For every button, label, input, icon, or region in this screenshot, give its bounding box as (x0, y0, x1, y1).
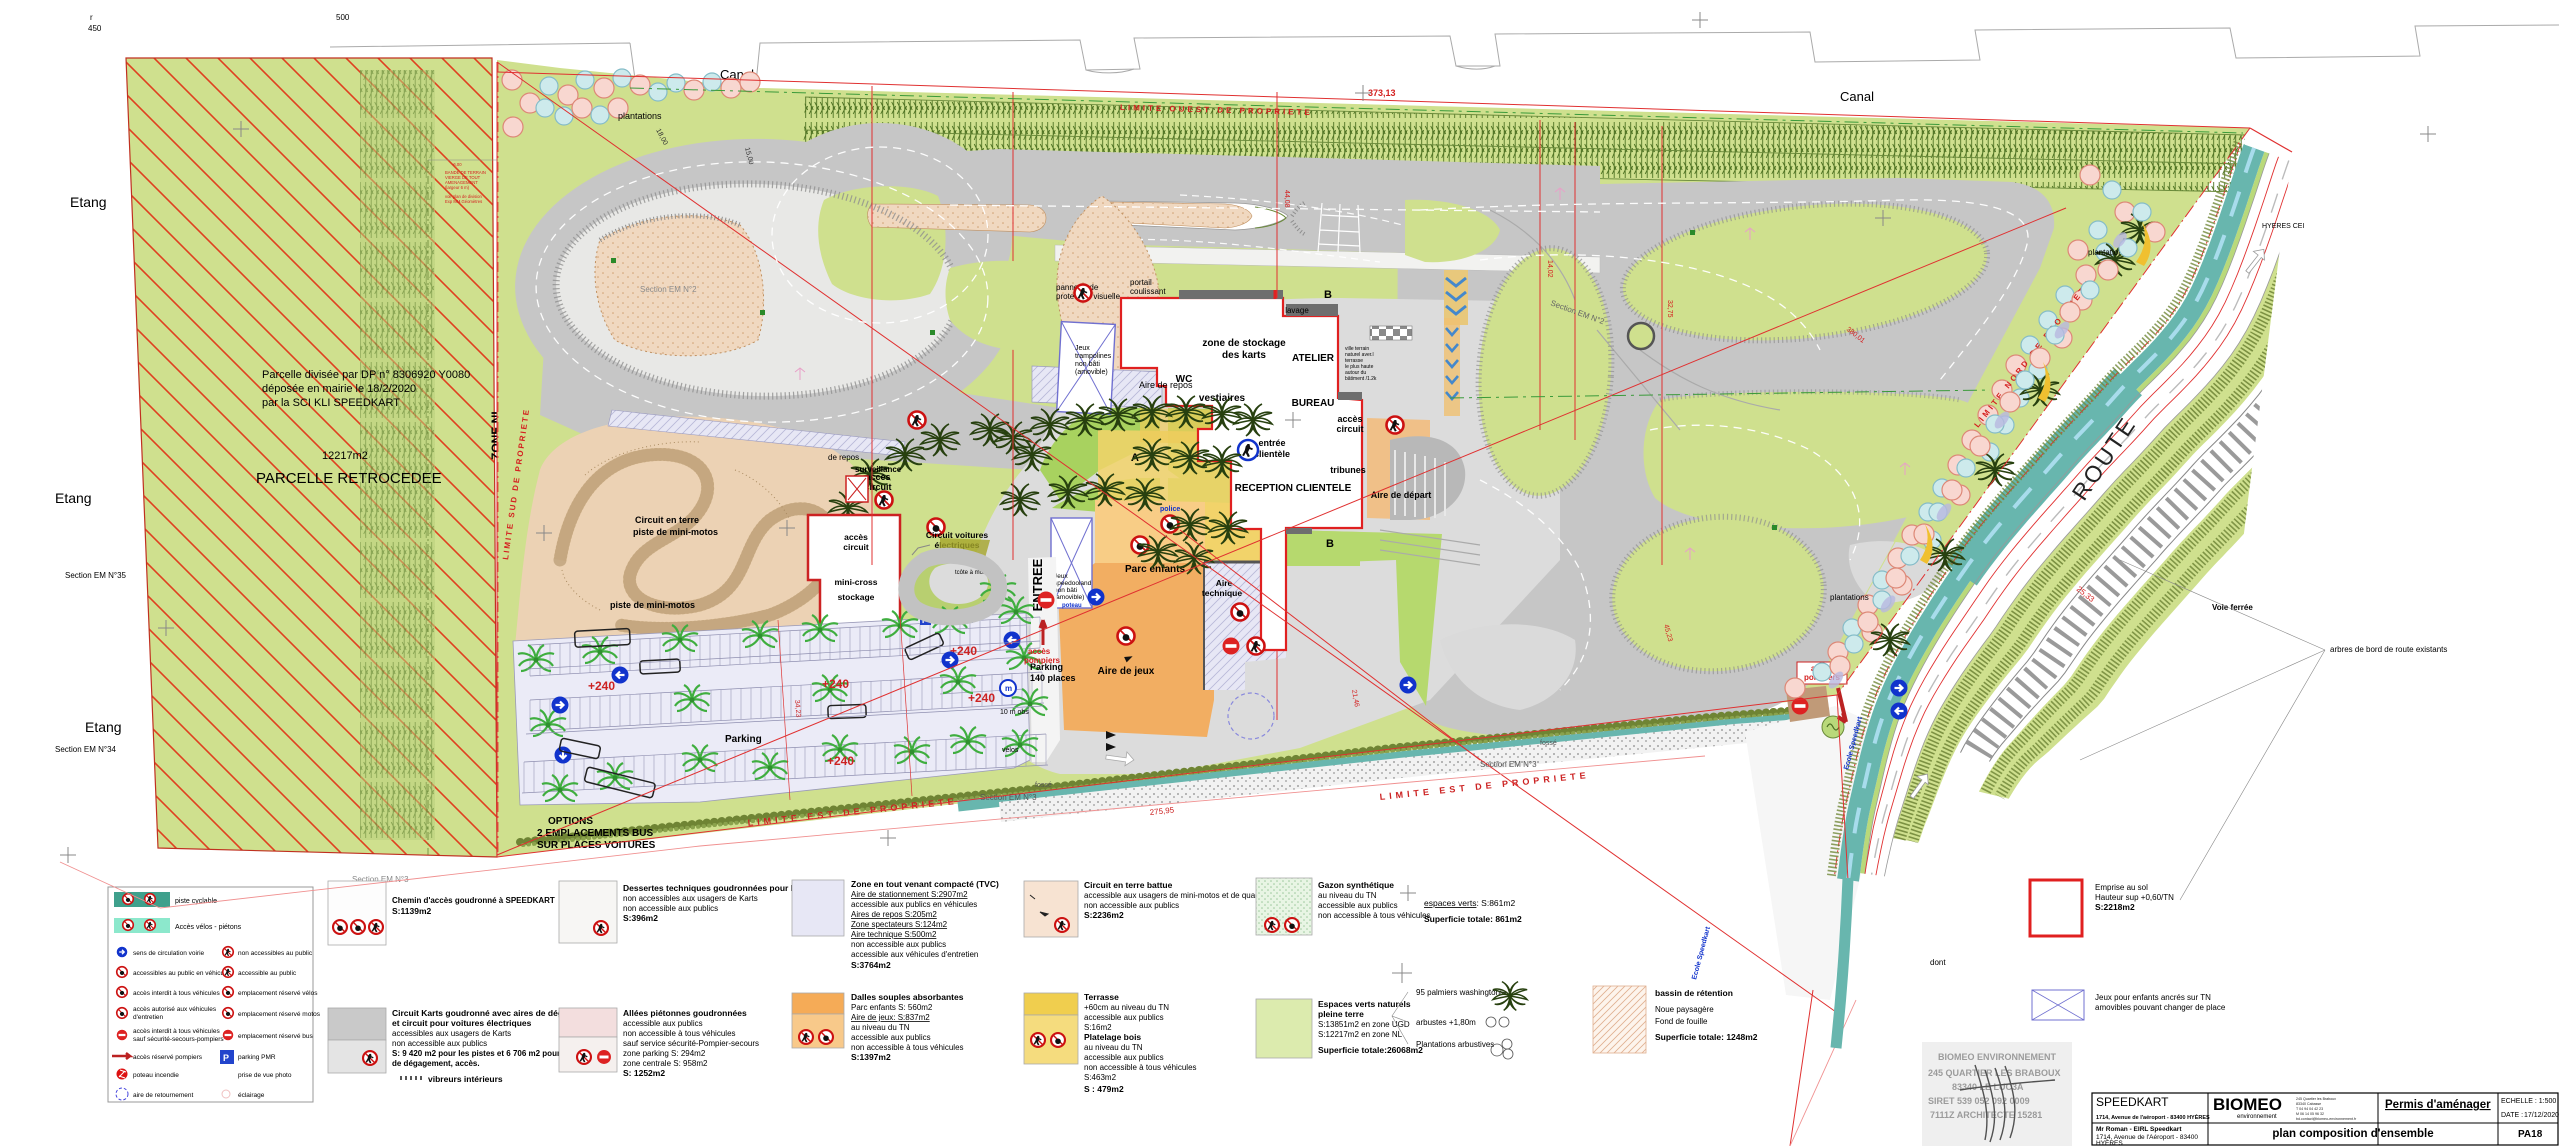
svg-text:12217m2: 12217m2 (322, 450, 368, 462)
svg-text:+240: +240 (588, 679, 615, 693)
svg-text:accessible aux publics: accessible aux publics (623, 1019, 703, 1028)
svg-text:fossé: fossé (1035, 782, 1052, 789)
svg-text:Zone en tout venant compacté (: Zone en tout venant compacté (TVC) (851, 879, 999, 889)
svg-text:aire de retournement: aire de retournement (133, 1092, 194, 1099)
svg-text:Parc enfants: Parc enfants (1125, 564, 1185, 575)
svg-text:technique: technique (1202, 588, 1242, 598)
svg-text:Jeux: Jeux (1075, 345, 1090, 352)
svg-text:zone parking S: 294m2: zone parking S: 294m2 (623, 1049, 706, 1058)
svg-text:non accessible à tous véhicule: non accessible à tous véhicules (1318, 911, 1431, 920)
svg-text:B: B (1326, 538, 1334, 550)
svg-text:non accessible aux publics: non accessible aux publics (623, 904, 718, 913)
svg-text:non bâti: non bâti (1075, 361, 1100, 368)
svg-text:m: m (1005, 684, 1012, 693)
svg-text:Aire de départ: Aire de départ (1371, 490, 1432, 500)
svg-text:S : 479m2: S : 479m2 (1084, 1084, 1124, 1094)
svg-text:surveillance: surveillance (855, 465, 902, 474)
svg-text:clientèle: clientèle (1254, 449, 1290, 459)
svg-text:(amovible): (amovible) (1054, 594, 1084, 601)
svg-text:Circuit en terre battue: Circuit en terre battue (1084, 880, 1173, 890)
svg-text:r: r (90, 13, 93, 22)
svg-text:et circuit pour voitures élect: et circuit pour voitures électriques (392, 1018, 532, 1028)
svg-text:accessible aux véhicules d'ent: accessible aux véhicules d'entretien (851, 950, 978, 959)
svg-text:non accessible aux publics: non accessible aux publics (392, 1039, 487, 1048)
svg-text:Superficie totale:26068m2: Superficie totale:26068m2 (1318, 1045, 1423, 1055)
svg-text:ATELIER: ATELIER (1292, 353, 1335, 364)
svg-text:Section EM N°2: Section EM N°2 (640, 285, 697, 294)
svg-text:Plantations arbustives: Plantations arbustives (1416, 1040, 1494, 1049)
svg-text:tribunes: tribunes (1330, 465, 1366, 475)
svg-text:Emprise au sol: Emprise au sol (2095, 883, 2148, 892)
svg-text:police: police (1160, 506, 1180, 513)
svg-text:Jeux pour enfants ancrés sur T: Jeux pour enfants ancrés sur TN (2095, 993, 2211, 1002)
svg-text:S:13851m2 en zone UGD: S:13851m2 en zone UGD (1318, 1020, 1410, 1029)
svg-text:Aire technique S:500m2: Aire technique S:500m2 (851, 930, 937, 939)
svg-text:piste de mini-motos: piste de mini-motos (610, 600, 695, 610)
svg-text:sauf sécurité-secours-pompiers: sauf sécurité-secours-pompiers (133, 1036, 224, 1043)
svg-text:fossé: fossé (1540, 740, 1557, 747)
svg-text:-6,00: -6,00 (452, 162, 462, 167)
svg-text:+240: +240 (968, 691, 995, 705)
svg-text:speedooland: speedooland (1054, 580, 1092, 587)
svg-text:bd.contact@biomeo-environnemen: bd.contact@biomeo-environnement.fr (2296, 1117, 2357, 1121)
svg-text:accessible aux publics: accessible aux publics (1084, 1053, 1164, 1062)
svg-text:Espaces verts naturels: Espaces verts naturels (1318, 999, 1411, 1009)
svg-text:Etang: Etang (85, 719, 122, 735)
svg-text:BIOMEO: BIOMEO (2213, 1095, 2282, 1114)
svg-text:espaces verts: S:861m2: espaces verts: S:861m2 (1424, 898, 1515, 908)
svg-text:DATE :: DATE : (2501, 1112, 2523, 1119)
svg-text:Fond de fouille: Fond de fouille (1655, 1017, 1708, 1026)
svg-text:éclairage: éclairage (238, 1092, 265, 1099)
svg-text:accessibles aux usagers de Kar: accessibles aux usagers de Karts (392, 1029, 511, 1038)
svg-text:P: P (223, 1053, 229, 1063)
svg-text:plan composition d'ensemble: plan composition d'ensemble (2272, 1128, 2433, 1140)
svg-text:17/12/2020: 17/12/2020 (2524, 1112, 2559, 1119)
svg-text:Parking: Parking (725, 734, 762, 745)
svg-text:bassin de rétention: bassin de rétention (1655, 988, 1733, 998)
svg-text:10 m obs: 10 m obs (1000, 709, 1029, 716)
svg-text:PA18: PA18 (2518, 1129, 2543, 1140)
svg-text:déposée en mairie le 18/2/2020: déposée en mairie le 18/2/2020 (262, 383, 416, 395)
svg-text:non accessibles aux usagers de: non accessibles aux usagers de Karts (623, 894, 758, 903)
svg-text:environnement: environnement (2237, 1114, 2277, 1120)
svg-text:vibreurs intérieurs: vibreurs intérieurs (428, 1074, 503, 1084)
svg-text:pleine terre: pleine terre (1318, 1009, 1364, 1019)
svg-text:parking PMR: parking PMR (238, 1054, 276, 1061)
svg-text:Dessertes techniques goudronné: Dessertes techniques goudronnées pour Ka… (623, 883, 813, 893)
svg-text:Zone spectateurs S:124m2: Zone spectateurs S:124m2 (851, 920, 948, 929)
svg-text:de repos: de repos (828, 453, 859, 462)
svg-text:HYERES CEI: HYERES CEI (2262, 223, 2304, 230)
svg-text:Superficie totale: 861m2: Superficie totale: 861m2 (1424, 914, 1522, 924)
svg-text:SUR PLACES VOITURES: SUR PLACES VOITURES (537, 840, 656, 851)
svg-text:44,08: 44,08 (1283, 190, 1290, 208)
svg-text:accès réservé pompiers: accès réservé pompiers (133, 1054, 203, 1061)
svg-text:Noue paysagère: Noue paysagère (1655, 1005, 1714, 1014)
svg-text:SPEEDKART: SPEEDKART (2096, 1095, 2169, 1109)
svg-text:Circuit en terre: Circuit en terre (635, 515, 699, 525)
svg-text:Exp MM.Géomètres: Exp MM.Géomètres (445, 199, 482, 204)
svg-text:Mr Roman - EIRL Speedkart: Mr Roman - EIRL Speedkart (2096, 1126, 2182, 1133)
svg-text:de dégagement, accès.: de dégagement, accès. (392, 1059, 480, 1068)
svg-text:Aires de repos S:205m2: Aires de repos S:205m2 (851, 910, 937, 919)
svg-text:sauf service sécurité-Pompier-: sauf service sécurité-Pompier-secours (623, 1039, 759, 1048)
svg-text:500: 500 (336, 13, 350, 22)
svg-text:1714, Avenue de l'aéroport - 8: 1714, Avenue de l'aéroport - 83400 HYÈRE… (2096, 1113, 2210, 1121)
svg-text:S:396m2: S:396m2 (623, 913, 658, 923)
svg-text:prise de vue photo: prise de vue photo (238, 1072, 292, 1079)
svg-text:Section EM N°35: Section EM N°35 (65, 571, 127, 580)
svg-text:dont: dont (1930, 958, 1946, 967)
svg-text:BIOMEO ENVIRONNEMENT: BIOMEO ENVIRONNEMENT (1938, 1052, 2057, 1062)
svg-text:bâtiment /1.2k: bâtiment /1.2k (1345, 376, 1377, 382)
svg-text:accessible aux publics en véhi: accessible aux publics en véhicules (851, 900, 977, 909)
svg-text:PARCELLE RETROCEDEE: PARCELLE RETROCEDEE (256, 470, 442, 487)
svg-text:Section EM N°3: Section EM N°3 (1480, 760, 1537, 769)
svg-text:sens de circulation voirie: sens de circulation voirie (133, 950, 205, 957)
svg-text:Etang: Etang (55, 490, 92, 506)
svg-text:S:463m2: S:463m2 (1084, 1073, 1117, 1082)
svg-text:Aire de jeux: S:837m2: Aire de jeux: S:837m2 (851, 1013, 930, 1022)
svg-text:Canal: Canal (1840, 89, 1874, 104)
svg-text:S:1397m2: S:1397m2 (851, 1052, 891, 1062)
svg-text:(largeur 6 m): (largeur 6 m) (445, 185, 470, 190)
svg-text:+240: +240 (827, 754, 854, 768)
svg-text:ECHELLE : 1:500: ECHELLE : 1:500 (2501, 1098, 2556, 1105)
svg-text:portail: portail (1130, 278, 1152, 287)
svg-text:Gazon synthétique: Gazon synthétique (1318, 880, 1394, 890)
svg-text:accès interdit à tous véhicule: accès interdit à tous véhicules (133, 1028, 220, 1035)
svg-text:circuit: circuit (843, 542, 869, 552)
svg-text:Section EM N°34: Section EM N°34 (55, 745, 117, 754)
svg-text:450: 450 (88, 24, 102, 33)
svg-text:accès: accès (844, 532, 868, 542)
svg-text:amovibles pouvant changer de p: amovibles pouvant changer de place (2095, 1003, 2226, 1012)
svg-text:arbustes +1,80m: arbustes +1,80m (1416, 1018, 1476, 1027)
svg-text:M 06 14 05 96 32: M 06 14 05 96 32 (2296, 1112, 2324, 1116)
svg-text:Terrasse: Terrasse (1084, 992, 1119, 1002)
svg-text:vestiaires: vestiaires (1199, 393, 1246, 404)
svg-text:stockage: stockage (838, 592, 875, 602)
svg-text:+60cm au niveau du TN: +60cm au niveau du TN (1084, 1003, 1169, 1012)
svg-text:(amovible): (amovible) (1075, 369, 1108, 376)
svg-text:poteau: poteau (1062, 603, 1082, 609)
svg-text:plantations: plantations (618, 111, 662, 121)
svg-text:S:1139m2: S:1139m2 (392, 906, 431, 916)
svg-text:au niveau du TN: au niveau du TN (851, 1023, 910, 1032)
svg-text:des karts: des karts (1222, 350, 1266, 361)
svg-text:Hauteur sup +0,60/TN: Hauteur sup +0,60/TN (2095, 893, 2174, 902)
svg-text:Platelage bois: Platelage bois (1084, 1032, 1141, 1042)
svg-text:emplacement réservé motos: emplacement réservé motos (238, 1011, 321, 1018)
svg-text:non accessible à tous véhicule: non accessible à tous véhicules (851, 1043, 964, 1052)
svg-text:Aire: Aire (1216, 578, 1233, 588)
svg-text:accessible au public: accessible au public (238, 970, 297, 977)
svg-text:accessible aux publics: accessible aux publics (1318, 901, 1398, 910)
svg-text:Chemin d'accès goudronné à SPE: Chemin d'accès goudronné à SPEEDKART (392, 896, 555, 905)
svg-text:lavage: lavage (1285, 306, 1309, 315)
svg-text:Parcelle divisée par DP n° 830: Parcelle divisée par DP n° 8306920 Y0080 (262, 369, 470, 381)
svg-text:Voie ferrée: Voie ferrée (2212, 603, 2253, 612)
svg-text:accès: accès (1337, 414, 1362, 424)
svg-text:S:3764m2: S:3764m2 (851, 960, 891, 970)
svg-text:S: 1252m2: S: 1252m2 (623, 1068, 665, 1078)
svg-text:au niveau du TN: au niveau du TN (1318, 891, 1377, 900)
svg-text:accessibles au public en véhic: accessibles au public en véhicules (133, 970, 233, 977)
svg-text:Etang: Etang (70, 194, 107, 210)
svg-text:accès autorisé aux véhicules: accès autorisé aux véhicules (133, 1006, 217, 1013)
svg-text:S:2236m2: S:2236m2 (1084, 910, 1124, 920)
svg-text:245 Quartier les Braboux: 245 Quartier les Braboux (2296, 1097, 2336, 1101)
svg-text:non accessible à tous véhicule: non accessible à tous véhicules (1084, 1063, 1197, 1072)
svg-text:Allées piétonnes goudronnées: Allées piétonnes goudronnées (623, 1008, 747, 1018)
svg-text:+240: +240 (822, 677, 849, 691)
svg-text:accessible aux usagers de mini: accessible aux usagers de mini-motos et … (1084, 891, 1264, 900)
svg-text:plantations: plantations (1830, 593, 1869, 602)
svg-text:non bâti: non bâti (1054, 587, 1077, 594)
svg-text:Permis d'aménager: Permis d'aménager (2385, 1099, 2491, 1111)
svg-text:zone centrale S: 958m2: zone centrale S: 958m2 (623, 1059, 708, 1068)
svg-text:zone de stockage: zone de stockage (1202, 338, 1286, 349)
svg-text:245 QUARTIER LES BRABOUX: 245 QUARTIER LES BRABOUX (1928, 1068, 2061, 1078)
svg-text:373,13: 373,13 (1368, 88, 1396, 98)
svg-text:2 EMPLACEMENTS BUS: 2 EMPLACEMENTS BUS (537, 828, 653, 839)
svg-text:non accessibles au public: non accessibles au public (238, 950, 313, 957)
svg-text:Superficie totale: 1248m2: Superficie totale: 1248m2 (1655, 1032, 1758, 1042)
svg-text:au niveau du TN: au niveau du TN (1084, 1043, 1143, 1052)
svg-text:accès interdit à tous véhicule: accès interdit à tous véhicules (133, 990, 220, 997)
svg-text:S:16m2: S:16m2 (1084, 1023, 1112, 1032)
svg-text:Aire de stationnement S:2907m2: Aire de stationnement S:2907m2 (851, 890, 968, 899)
svg-text:accès: accès (1028, 647, 1051, 656)
svg-text:coulissant: coulissant (1130, 287, 1166, 296)
svg-text:Parc enfants S: 560m2: Parc enfants S: 560m2 (851, 1003, 933, 1012)
svg-text:Aire de repos: Aire de repos (1139, 380, 1193, 390)
svg-text:Circuit voitures: Circuit voitures (926, 530, 989, 540)
svg-text:d'entretien: d'entretien (133, 1014, 164, 1021)
svg-text:S:12217m2 en zone NL: S:12217m2 en zone NL (1318, 1030, 1403, 1039)
svg-text:T 04 94 04 42 23: T 04 94 04 42 23 (2296, 1107, 2323, 1111)
svg-text:RECEPTION CLIENTELE: RECEPTION CLIENTELE (1235, 483, 1352, 494)
svg-text:piste de mini-motos: piste de mini-motos (633, 527, 718, 537)
svg-text:83340 Cabasse: 83340 Cabasse (2296, 1102, 2321, 1106)
svg-text:HYÈRES: HYÈRES (2096, 1138, 2123, 1146)
svg-text:non accessible aux publics: non accessible aux publics (1084, 901, 1179, 910)
svg-text:Accès vélos - piétons: Accès vélos - piétons (175, 924, 242, 931)
svg-text:non accessible aux publics: non accessible aux publics (851, 940, 946, 949)
svg-text:32,75: 32,75 (1666, 300, 1673, 318)
svg-text:arbres de bord de route exista: arbres de bord de route existants (2330, 645, 2447, 654)
svg-text:accessible aux publics: accessible aux publics (1084, 1013, 1164, 1022)
svg-text:Dalles souples absorbantes: Dalles souples absorbantes (851, 992, 964, 1002)
svg-text:trampolines: trampolines (1075, 353, 1112, 360)
svg-text:BUREAU: BUREAU (1292, 398, 1335, 409)
svg-text:circuit: circuit (1336, 424, 1363, 434)
svg-text:accessible aux publics: accessible aux publics (851, 1033, 931, 1042)
svg-text:pompiers: pompiers (1024, 656, 1061, 665)
svg-text:14,02: 14,02 (1546, 260, 1553, 278)
svg-text:140 places: 140 places (1030, 673, 1076, 683)
svg-text:entrée: entrée (1258, 438, 1285, 448)
svg-text:par la SCI KLI SPEEDKART: par la SCI KLI SPEEDKART (262, 397, 400, 409)
svg-text:emplacement réservé bus: emplacement réservé bus (238, 1033, 314, 1040)
svg-text:non accessible à tous véhicule: non accessible à tous véhicules (623, 1029, 736, 1038)
svg-text:mini-cross: mini-cross (835, 577, 878, 587)
svg-text:Aire de jeux: Aire de jeux (1098, 666, 1155, 677)
svg-text:poteau incendie: poteau incendie (133, 1072, 179, 1079)
svg-text:B: B (1324, 289, 1332, 301)
svg-text:S:2218m2: S:2218m2 (2095, 902, 2135, 912)
svg-text:vélos: vélos (1002, 747, 1019, 754)
svg-text:emplacement réservé vélos: emplacement réservé vélos (238, 990, 318, 997)
